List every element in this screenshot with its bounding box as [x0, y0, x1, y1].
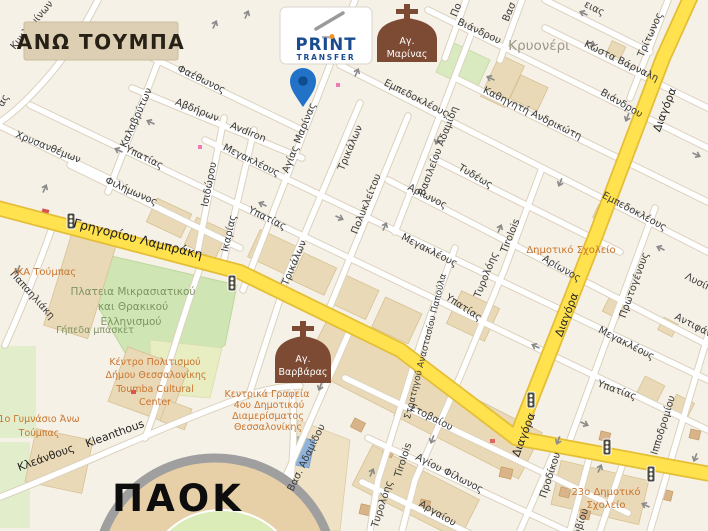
logo-print-text: PRINT — [295, 35, 356, 54]
stadium-label-paok: ΠΑΟΚ — [112, 477, 244, 520]
poi-dimotiko23-l2: Σχολείο — [586, 499, 625, 511]
poi-dimotiko23-l1: 23ο Δημοτικό — [571, 486, 640, 498]
church-agia-varvara-l1: Αγ. — [295, 354, 310, 365]
street-label-fragment-eias: ειας — [582, 0, 606, 18]
poi-grafeia-l4: Θεσσαλονίκης — [234, 422, 302, 433]
poi-grafeia-l1: Κεντρικά Γραφεία — [225, 389, 310, 400]
poi-gipeda: Γήπεδα μπάσκετ — [56, 325, 134, 336]
street-label-lysippou: Λυσίππου — [683, 270, 708, 302]
poi-gymnasio-l1: 1ο Γυμνάσιο Άνω — [0, 414, 80, 425]
street-label-ypatias-1: Υπατίας — [123, 143, 166, 172]
district-label-kryoneri: Κρυονέρι — [508, 38, 570, 54]
logo-i-dot-icon — [330, 34, 335, 39]
church-agia-marina-l1: Αγ. — [399, 36, 414, 47]
poi-cultural-l3: Toumba Cultural — [115, 384, 194, 395]
street-label-fragment-as: ας — [0, 93, 12, 109]
street-label-chrysanthemon: Χρυσανθέμων — [14, 129, 83, 166]
poi-grafeia-l2: 4ου Δημοτικού — [234, 400, 305, 411]
poi-grafeia-l3: Διαμερίσματος — [232, 411, 304, 422]
street-label-agias-marinas: Αγίας Μαρίνας — [280, 101, 319, 175]
street-label-kalavryton: Καλαβρύτων — [118, 86, 155, 150]
area-label-ano-toumpa-text: ΑΝΩ ΤΟΥΜΠΑ — [17, 30, 185, 54]
print-transfer-logo[interactable]: PRINT TRANSFER — [280, 7, 372, 64]
street-label-viandrou-1: Βιάνδρου — [456, 16, 504, 47]
traffic-light-icon — [228, 275, 236, 291]
poi-cultural-l4: Center — [139, 397, 171, 408]
traffic-light-icon — [647, 466, 655, 482]
street-label-ypatias-4: Υπατίας — [595, 377, 638, 403]
poi-dimotiko: Δημοτικό Σχολείο — [526, 244, 615, 256]
street-label-faethonos: Φαέθωνος — [175, 63, 227, 97]
traffic-light-icon — [527, 392, 535, 408]
area-label-ano-toumpa: ΑΝΩ ΤΟΥΜΠΑ — [17, 22, 185, 60]
poi-cultural-l2: Δήμου Θεσσαλονίκης — [106, 370, 207, 381]
poi-plateia-l1: Πλατεια Μικρασιατικού — [71, 286, 196, 298]
street-label-empedokleous-1: Εμπεδοκλέους — [382, 77, 451, 120]
map-canvas[interactable]: Κυκλαμίνων Χρυσανθέμων Φαέθωνος Καλαβρύτ… — [0, 0, 708, 531]
church-agia-varvara-l2: Βαρβάρας — [278, 367, 327, 378]
logo-transfer-text: TRANSFER — [297, 53, 356, 62]
poi-plateia-l2: και Θρακικού — [98, 301, 168, 313]
traffic-light-icon — [603, 439, 611, 455]
poi-ika: ΙΚΑ Τούμπας — [14, 266, 76, 278]
poi-cultural-l1: Κέντρο Πολιτισμού — [109, 357, 200, 368]
church-agia-marina-l2: Μαρίνας — [387, 49, 428, 60]
poi-gymnasio-l2: Τούμπας — [18, 428, 60, 439]
